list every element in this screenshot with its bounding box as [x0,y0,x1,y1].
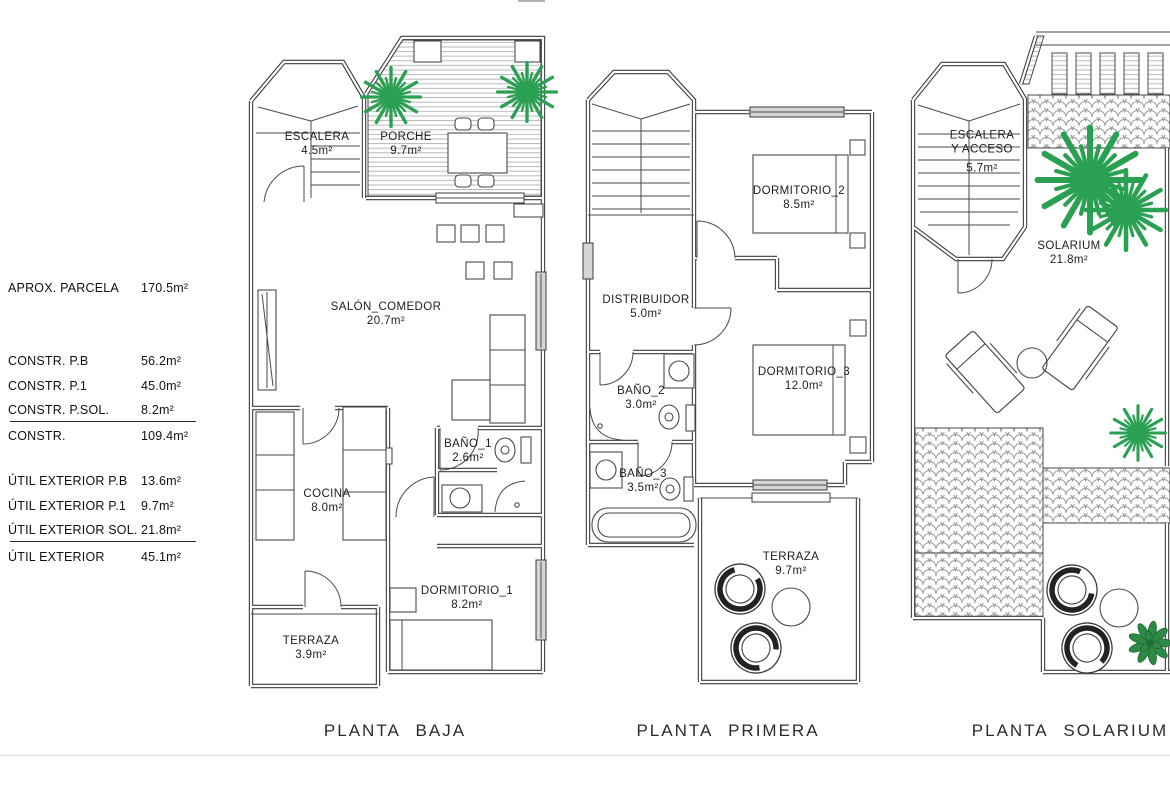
room-name: DORMITORIO_2 [753,185,845,197]
room-name-line2: Y ACCESO [950,143,1015,157]
legend-label: APROX. PARCELA [8,281,141,296]
room-label-dormitorio1: DORMITORIO_1 8.2m² [421,584,513,612]
doors-primera [600,221,735,476]
room-name: ESCALERA [285,131,350,143]
room-label-dormitorio3: DORMITORIO_3 12.0m² [758,365,850,393]
legend-value: 9.7m² [141,499,174,514]
legend-value: 21.8m² [141,523,181,538]
room-name: DISTRIBUIDOR [602,294,689,306]
room-name: DORMITORIO_3 [758,366,850,378]
roof-tile-band [1028,95,1170,148]
roof-tile-block [915,428,1043,618]
legend-row-util-p1: ÚTIL EXTERIOR P.1 9.7m² [8,499,196,514]
room-label-escalera: ESCALERA 4.5m² [285,130,350,158]
legend-row-parcela: APROX. PARCELA 170.5m² [8,281,196,296]
legend-row-constr-p1: CONSTR. P.1 45.0m² [8,379,196,394]
pergola-slats [1036,32,1170,94]
room-label-distribuidor: DISTRIBUIDOR 5.0m² [602,293,689,321]
room-area: 3.0m² [617,398,665,412]
room-name: SOLARIUM [1037,240,1100,252]
room-label-cocina: COCINA 8.0m² [303,487,350,515]
room-label-bano3: BAÑO_3 3.5m² [619,467,667,495]
legend-row-constr-psol: CONSTR. P.SOL. 8.2m² [8,403,196,418]
room-area: 8.2m² [421,598,513,612]
room-area: 4.5m² [285,144,350,158]
floor-plan-sheet: APROX. PARCELA 170.5m² CONSTR. P.B 56.2m… [0,0,1170,785]
room-area: 5.7m² [950,162,1015,176]
room-area: 3.5m² [619,481,667,495]
legend-row-util-sol: ÚTIL EXTERIOR SOL. 21.8m² [8,523,196,538]
bush-icon [1128,621,1170,666]
palm-icon [1111,406,1166,461]
legend-label: CONSTR. P.B [8,354,141,369]
bano3-fixtures [590,452,696,542]
legend-row-util-total: ÚTIL EXTERIOR 45.1m² [8,550,196,565]
legend-label: ÚTIL EXTERIOR P.1 [8,499,141,514]
caption-planta-solarium: PLANTA SOLARIUM [972,721,1168,741]
legend-row-util-pb: ÚTIL EXTERIOR P.B 13.6m² [8,474,196,489]
legend-value: 13.6m² [141,474,181,489]
legend-row-constr-pb: CONSTR. P.B 56.2m² [8,354,196,369]
room-name: BAÑO_2 [617,385,665,397]
legend-divider [10,541,196,542]
room-name: TERRAZA [283,635,339,647]
room-area: 9.7m² [763,564,819,578]
caption-planta-primera: PLANTA PRIMERA [636,721,819,741]
room-area: 9.7m² [380,144,432,158]
legend-label: ÚTIL EXTERIOR [8,550,141,565]
roof-tile-strip [1043,468,1170,523]
room-area: 12.0m² [758,379,850,393]
room-label-porche: PORCHE 9.7m² [380,130,432,158]
room-label-bano1: BAÑO_1 2.6m² [444,437,492,465]
legend-divider [10,421,196,422]
room-label-terraza-primera: TERRAZA 9.7m² [763,550,819,578]
room-label-bano2: BAÑO_2 3.0m² [617,384,665,412]
legend-value: 170.5m² [141,281,188,296]
legend-value: 8.2m² [141,403,174,418]
room-area: 5.0m² [602,307,689,321]
legend-value: 45.0m² [141,379,181,394]
room-area: 3.9m² [283,648,339,662]
room-name: TERRAZA [763,551,819,563]
room-name: COCINA [303,488,350,500]
legend-label: CONSTR. P.1 [8,379,141,394]
cocina-counters [256,407,386,540]
room-label-escalera-acceso: ESCALERA Y ACCESO 5.7m² [950,129,1015,176]
room-area: 20.7m² [331,314,442,328]
legend-label: ÚTIL EXTERIOR SOL. [8,523,141,538]
room-label-salon-comedor: SALÓN_COMEDOR 20.7m² [331,300,442,328]
room-label-solarium: SOLARIUM 21.8m² [1037,239,1100,267]
room-name: PORCHE [380,131,432,143]
legend-value: 109.4m² [141,429,188,444]
room-area: 8.0m² [303,501,350,515]
legend-label: CONSTR. [8,429,141,444]
legend-value: 56.2m² [141,354,181,369]
room-name: DORMITORIO_1 [421,585,513,597]
room-name: ESCALERA [950,130,1015,142]
room-area: 21.8m² [1037,253,1100,267]
room-name: BAÑO_3 [619,468,667,480]
caption-planta-baja: PLANTA BAJA [324,721,466,741]
room-label-terraza-baja: TERRAZA 3.9m² [283,634,339,662]
legend-label: ÚTIL EXTERIOR P.B [8,474,141,489]
legend-label: CONSTR. P.SOL. [8,403,141,418]
room-name: BAÑO_1 [444,438,492,450]
legend-row-constr-total: CONSTR. 109.4m² [8,429,196,444]
stairs-primera [588,104,694,215]
room-label-dormitorio2: DORMITORIO_2 8.5m² [753,184,845,212]
room-area: 8.5m² [753,198,845,212]
room-area: 2.6m² [444,451,492,465]
room-name: SALÓN_COMEDOR [331,301,442,313]
legend-value: 45.1m² [141,550,181,565]
